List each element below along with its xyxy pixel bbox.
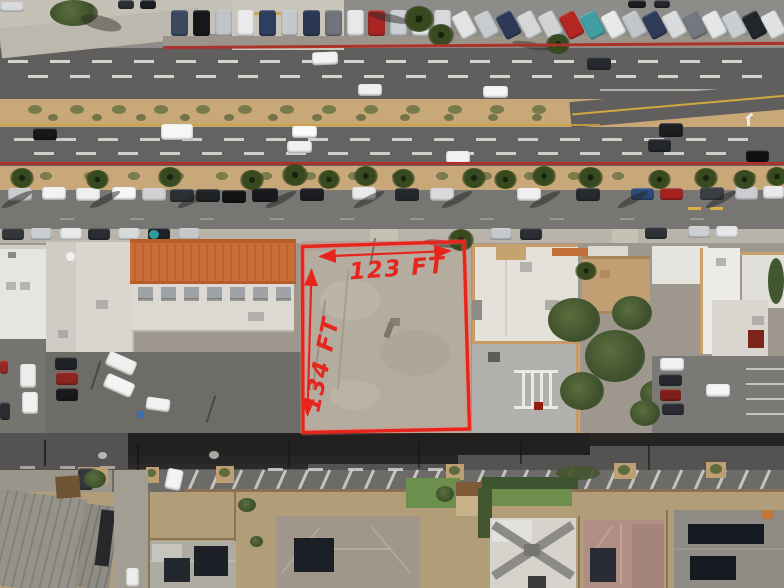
tree bbox=[612, 296, 652, 330]
lane-marking bbox=[470, 60, 490, 63]
tile-ridge bbox=[142, 239, 144, 284]
tile-ridge bbox=[254, 239, 256, 284]
parked-car bbox=[60, 228, 82, 240]
debris bbox=[390, 318, 400, 326]
tile-ridge bbox=[150, 239, 152, 284]
palm-tree bbox=[392, 169, 415, 188]
tile-ridge bbox=[182, 239, 184, 284]
tile-ridge bbox=[230, 239, 232, 284]
lane-marking bbox=[8, 60, 28, 63]
lane-marking bbox=[490, 75, 510, 78]
lane-marking bbox=[370, 152, 390, 155]
desert-shrub bbox=[48, 114, 58, 121]
lane-marking bbox=[28, 75, 48, 78]
desert-shrub bbox=[488, 114, 498, 121]
parked-car bbox=[735, 187, 758, 200]
palm-tree bbox=[766, 167, 784, 186]
umbrella bbox=[149, 230, 159, 239]
lane-marking bbox=[496, 152, 516, 155]
rooftop-unit bbox=[752, 316, 764, 325]
hvac-shadow bbox=[230, 298, 245, 301]
car bbox=[287, 141, 312, 153]
lane-marking bbox=[60, 218, 74, 220]
lane-marking bbox=[560, 138, 580, 141]
stall-line bbox=[188, 469, 199, 489]
parked-car bbox=[281, 10, 298, 36]
parked-car bbox=[88, 228, 110, 240]
lane-marking bbox=[574, 75, 594, 78]
parked-car bbox=[142, 188, 166, 201]
building-parapet bbox=[505, 250, 507, 335]
lane-marking bbox=[580, 152, 600, 155]
desert-shrub bbox=[180, 114, 190, 121]
palm-tree bbox=[462, 168, 486, 188]
stall-line bbox=[738, 469, 749, 489]
rooftop-object bbox=[762, 510, 774, 519]
lane-marking bbox=[176, 60, 196, 63]
parked-car bbox=[662, 403, 684, 415]
pole-shadow bbox=[648, 444, 650, 470]
lane-marking bbox=[344, 60, 364, 63]
roof-stripe bbox=[522, 372, 525, 408]
tile-ridge bbox=[278, 239, 280, 284]
roof-stripe bbox=[549, 372, 552, 408]
parked-car bbox=[660, 358, 684, 371]
hvac-shadow bbox=[161, 298, 176, 301]
desert-shrub bbox=[268, 114, 278, 121]
building-shadow bbox=[590, 433, 784, 446]
desert-shrub bbox=[28, 105, 42, 114]
hvac-shadow bbox=[184, 298, 199, 301]
desert-shrub bbox=[136, 114, 146, 121]
stall-line bbox=[364, 469, 375, 489]
rooftop-object bbox=[534, 402, 543, 410]
lane-marking bbox=[56, 138, 76, 141]
building-roof bbox=[0, 245, 46, 339]
tile-ridge bbox=[262, 239, 264, 284]
rooftop-unit bbox=[716, 258, 726, 266]
lane-marking bbox=[140, 138, 160, 141]
lane-marking bbox=[244, 152, 264, 155]
shrub bbox=[219, 468, 230, 477]
lane-marking bbox=[616, 75, 636, 78]
parked-car bbox=[0, 360, 8, 374]
lane-marking bbox=[202, 152, 222, 155]
desert-shrub bbox=[356, 114, 366, 121]
tree bbox=[560, 372, 604, 410]
lane-marking bbox=[554, 60, 574, 63]
yard-wall bbox=[148, 538, 234, 540]
hedge bbox=[768, 258, 784, 304]
parked-car bbox=[22, 392, 38, 414]
lane-marking bbox=[268, 468, 283, 471]
building-parapet bbox=[46, 240, 134, 242]
aerial-photo: 123 FT 134 FT bbox=[0, 0, 784, 588]
car bbox=[358, 84, 382, 96]
tile-ridge bbox=[270, 239, 272, 284]
desert-shrub bbox=[128, 172, 140, 180]
scene-elements bbox=[0, 0, 784, 588]
pole-shadow bbox=[44, 440, 46, 466]
stall-line bbox=[276, 469, 287, 489]
tile-ridge bbox=[190, 239, 192, 284]
stall-line bbox=[672, 469, 683, 489]
desert-shrub bbox=[112, 105, 126, 114]
lane-marking bbox=[620, 218, 634, 220]
lane-marking bbox=[322, 75, 342, 78]
desert-shrub bbox=[154, 105, 168, 114]
tile-ridge bbox=[206, 239, 208, 284]
car bbox=[483, 86, 508, 98]
roof-notch bbox=[472, 300, 482, 320]
parked-car bbox=[347, 10, 364, 36]
lane-marking bbox=[70, 75, 90, 78]
tile-ridge-cap bbox=[130, 239, 296, 243]
desert-shrub bbox=[238, 105, 252, 114]
desert-shrub bbox=[364, 105, 378, 114]
pole-shadow bbox=[288, 440, 290, 466]
pole-shadow bbox=[137, 444, 139, 470]
lane-marking bbox=[406, 75, 426, 78]
desert-shrub bbox=[280, 105, 294, 114]
car bbox=[161, 124, 193, 140]
lane-marking bbox=[728, 138, 748, 141]
lane-marking bbox=[622, 152, 642, 155]
rooftop-unit bbox=[524, 544, 540, 556]
lane-marking bbox=[112, 75, 132, 78]
rooftop-unit bbox=[20, 282, 30, 290]
palm-tree bbox=[575, 262, 597, 280]
palm-tree bbox=[494, 170, 517, 189]
lane-marking bbox=[92, 60, 112, 63]
lane-marking bbox=[638, 60, 658, 63]
pole-shadow bbox=[520, 440, 522, 464]
parked-car bbox=[0, 2, 24, 12]
building-roof bbox=[588, 246, 628, 256]
car bbox=[648, 139, 671, 152]
palm-tree bbox=[532, 166, 556, 186]
tile-ridge bbox=[214, 239, 216, 284]
lane-marking bbox=[538, 152, 558, 155]
tile-ridge bbox=[294, 239, 296, 284]
lane-marking bbox=[134, 60, 154, 63]
tile-ridge bbox=[246, 239, 248, 284]
window bbox=[528, 576, 546, 588]
lane-marking bbox=[706, 152, 726, 155]
palm-tree bbox=[448, 229, 474, 251]
parked-car bbox=[706, 384, 730, 397]
manhole bbox=[98, 452, 107, 459]
hvac-shadow bbox=[207, 298, 222, 301]
palm-tree bbox=[733, 170, 756, 189]
lane-marking bbox=[340, 218, 354, 220]
desert-shrub bbox=[448, 105, 462, 114]
parked-car bbox=[126, 568, 139, 587]
dirt-patch bbox=[380, 330, 450, 376]
solar-panels bbox=[164, 558, 190, 582]
lane-marking bbox=[308, 468, 323, 471]
stall-line bbox=[694, 469, 705, 489]
desert-shrub bbox=[196, 105, 210, 114]
solar-panels bbox=[590, 548, 616, 582]
yard-wall bbox=[578, 516, 580, 588]
yellow-dash bbox=[688, 207, 701, 210]
lane-marking bbox=[658, 75, 678, 78]
hedge bbox=[482, 477, 578, 489]
lane-marking bbox=[700, 75, 720, 78]
parked-car bbox=[56, 372, 78, 385]
palm-tree bbox=[10, 168, 34, 188]
rooftop-unit bbox=[488, 352, 500, 362]
lane-marking bbox=[328, 152, 348, 155]
lane-marking bbox=[34, 152, 54, 155]
stall-line bbox=[746, 398, 784, 400]
building-trim bbox=[740, 252, 784, 255]
tree bbox=[630, 400, 660, 426]
parked-car bbox=[30, 228, 52, 240]
lane-marking bbox=[512, 60, 532, 63]
solar-panels bbox=[688, 524, 764, 544]
parked-car bbox=[2, 228, 24, 240]
parked-car bbox=[654, 0, 670, 8]
lane-marking bbox=[350, 138, 370, 141]
parked-car bbox=[716, 226, 738, 238]
parked-car bbox=[395, 188, 419, 201]
desert-shrub bbox=[612, 172, 624, 180]
trash-bin bbox=[137, 411, 144, 418]
lane-marking bbox=[476, 138, 496, 141]
tile-ridge bbox=[134, 239, 136, 284]
lane-marking bbox=[448, 75, 468, 78]
lane-marking bbox=[412, 152, 432, 155]
stall-line bbox=[298, 469, 309, 489]
lane-marking bbox=[270, 218, 284, 220]
parking-lot bbox=[46, 352, 302, 433]
roof-stripe bbox=[514, 370, 558, 373]
lane-marking bbox=[392, 138, 412, 141]
lane-marking bbox=[20, 466, 35, 469]
lane-marking bbox=[550, 218, 564, 220]
palm-tree bbox=[428, 24, 454, 46]
tile-ridge bbox=[166, 239, 168, 284]
parked-car bbox=[659, 374, 682, 386]
lane-marking bbox=[518, 138, 538, 141]
tile-ridge bbox=[286, 239, 288, 284]
lane-marking bbox=[386, 60, 406, 63]
tree bbox=[436, 486, 454, 502]
desert-shrub bbox=[532, 114, 542, 121]
lane-marking bbox=[680, 60, 700, 63]
parked-car bbox=[215, 10, 232, 36]
lane-marking bbox=[266, 138, 286, 141]
yard-wall bbox=[666, 510, 668, 588]
palm-tree bbox=[282, 164, 308, 186]
lane-marking bbox=[76, 152, 96, 155]
metal-roof bbox=[0, 489, 88, 588]
parked-car bbox=[628, 0, 646, 8]
lane-marking bbox=[280, 75, 300, 78]
shrub bbox=[147, 469, 156, 477]
lane-marking bbox=[130, 218, 144, 220]
pole-shadow bbox=[418, 442, 420, 468]
parked-car bbox=[520, 228, 542, 240]
lawn bbox=[484, 489, 572, 506]
desert-shrub bbox=[444, 114, 454, 121]
parked-car bbox=[763, 186, 784, 199]
building-trim bbox=[582, 256, 650, 259]
palm-tree bbox=[86, 170, 109, 189]
parked-car bbox=[55, 357, 77, 370]
solar-panels bbox=[194, 546, 228, 576]
car bbox=[587, 57, 611, 70]
parked-car bbox=[300, 188, 324, 201]
building-parapet bbox=[132, 330, 294, 332]
building-trim bbox=[700, 248, 703, 354]
lane-marking bbox=[480, 218, 494, 220]
desert-shrub bbox=[490, 105, 504, 114]
tree bbox=[84, 470, 106, 488]
lane-marking bbox=[364, 75, 384, 78]
tile-ridge bbox=[238, 239, 240, 284]
lane-marking bbox=[60, 466, 75, 469]
roof-ridge bbox=[674, 548, 784, 550]
lane-marking bbox=[154, 75, 174, 78]
parked-car bbox=[259, 10, 276, 36]
rooftop-unit bbox=[520, 262, 532, 272]
lane-marking bbox=[308, 138, 328, 141]
solar-panels bbox=[294, 538, 334, 572]
parked-car bbox=[576, 188, 600, 201]
car bbox=[312, 52, 338, 66]
stall-line bbox=[254, 469, 265, 489]
parked-car bbox=[645, 227, 667, 239]
desert-shrub bbox=[312, 114, 322, 121]
driveway-apron bbox=[612, 229, 638, 243]
palm-tree bbox=[648, 170, 671, 189]
lane-marking bbox=[664, 152, 684, 155]
parked-car bbox=[660, 188, 683, 200]
hvac-shadow bbox=[253, 298, 268, 301]
parked-car bbox=[237, 10, 254, 36]
hvac-shadow bbox=[138, 298, 153, 301]
parked-car bbox=[56, 388, 78, 401]
desert-shrub bbox=[70, 105, 84, 114]
parked-car bbox=[660, 389, 681, 401]
rooftop-vent bbox=[248, 312, 264, 321]
palm-tree bbox=[354, 166, 378, 186]
palm-tree bbox=[318, 170, 340, 189]
lane-marking bbox=[690, 218, 704, 220]
rooftop-unit bbox=[96, 300, 108, 309]
lane-marking bbox=[722, 60, 742, 63]
lane-marking bbox=[410, 218, 424, 220]
parked-car bbox=[325, 10, 342, 36]
lane-marking bbox=[532, 75, 552, 78]
stall-line bbox=[760, 469, 771, 489]
lane-marking bbox=[160, 152, 180, 155]
container bbox=[748, 330, 764, 348]
parked-car bbox=[20, 364, 36, 388]
stall-line bbox=[746, 383, 784, 385]
building-parapet bbox=[0, 245, 46, 249]
tree bbox=[238, 498, 256, 512]
tile-ridge bbox=[222, 239, 224, 284]
rooftop-unit bbox=[600, 270, 610, 278]
parked-car bbox=[490, 228, 512, 240]
car bbox=[33, 128, 57, 140]
palm-tree bbox=[578, 167, 603, 188]
lane-marking bbox=[686, 138, 706, 141]
lane-marking bbox=[238, 75, 258, 78]
desert-shrub bbox=[224, 114, 234, 121]
tree bbox=[250, 536, 263, 547]
lane-marking bbox=[602, 138, 622, 141]
satellite-dish bbox=[66, 252, 75, 261]
house-roof bbox=[632, 524, 664, 588]
rooftop-unit bbox=[58, 330, 68, 338]
lane-marking bbox=[742, 75, 762, 78]
palm-tree bbox=[240, 170, 264, 190]
parked-car bbox=[193, 10, 210, 36]
desert-shrub bbox=[322, 105, 336, 114]
parked-car bbox=[303, 10, 320, 36]
dirt-patch bbox=[320, 280, 380, 320]
desert-shrub bbox=[40, 172, 52, 180]
shrub bbox=[449, 466, 460, 475]
red-curb bbox=[0, 162, 784, 165]
roof-ridge bbox=[620, 524, 622, 584]
tile-ridge bbox=[174, 239, 176, 284]
parked-car bbox=[42, 187, 66, 200]
tree bbox=[548, 298, 600, 342]
parked-car bbox=[688, 226, 710, 238]
car bbox=[659, 123, 683, 137]
parked-car bbox=[171, 10, 188, 36]
hvac-shadow bbox=[276, 298, 291, 301]
car bbox=[292, 126, 317, 138]
parked-car bbox=[118, 0, 134, 9]
stall-line bbox=[746, 368, 784, 370]
lane-marking bbox=[98, 138, 118, 141]
palm-tree bbox=[158, 167, 182, 187]
shrub bbox=[710, 464, 722, 474]
building-shadow bbox=[128, 455, 458, 464]
tile-ridge bbox=[198, 239, 200, 284]
shed bbox=[55, 475, 80, 499]
desert-shrub bbox=[436, 172, 448, 180]
shrub bbox=[618, 465, 630, 475]
lane-marking bbox=[14, 138, 34, 141]
manhole bbox=[209, 451, 219, 459]
parked-car bbox=[222, 190, 246, 203]
lane-marking bbox=[118, 152, 138, 155]
desert-shrub bbox=[400, 114, 410, 121]
car bbox=[746, 150, 769, 162]
stall-line bbox=[342, 469, 353, 489]
stall-line bbox=[650, 469, 661, 489]
building-trim bbox=[496, 244, 526, 260]
parked-car bbox=[140, 0, 156, 9]
desert-shrub bbox=[406, 105, 420, 114]
desert-shrub bbox=[532, 105, 546, 114]
lane-marking bbox=[200, 218, 214, 220]
stall-line bbox=[320, 469, 331, 489]
palm-tree bbox=[694, 168, 718, 188]
lane-marking bbox=[50, 60, 70, 63]
lane-marking bbox=[196, 75, 216, 78]
rooftop-unit bbox=[6, 282, 16, 290]
solar-panels bbox=[690, 556, 736, 580]
